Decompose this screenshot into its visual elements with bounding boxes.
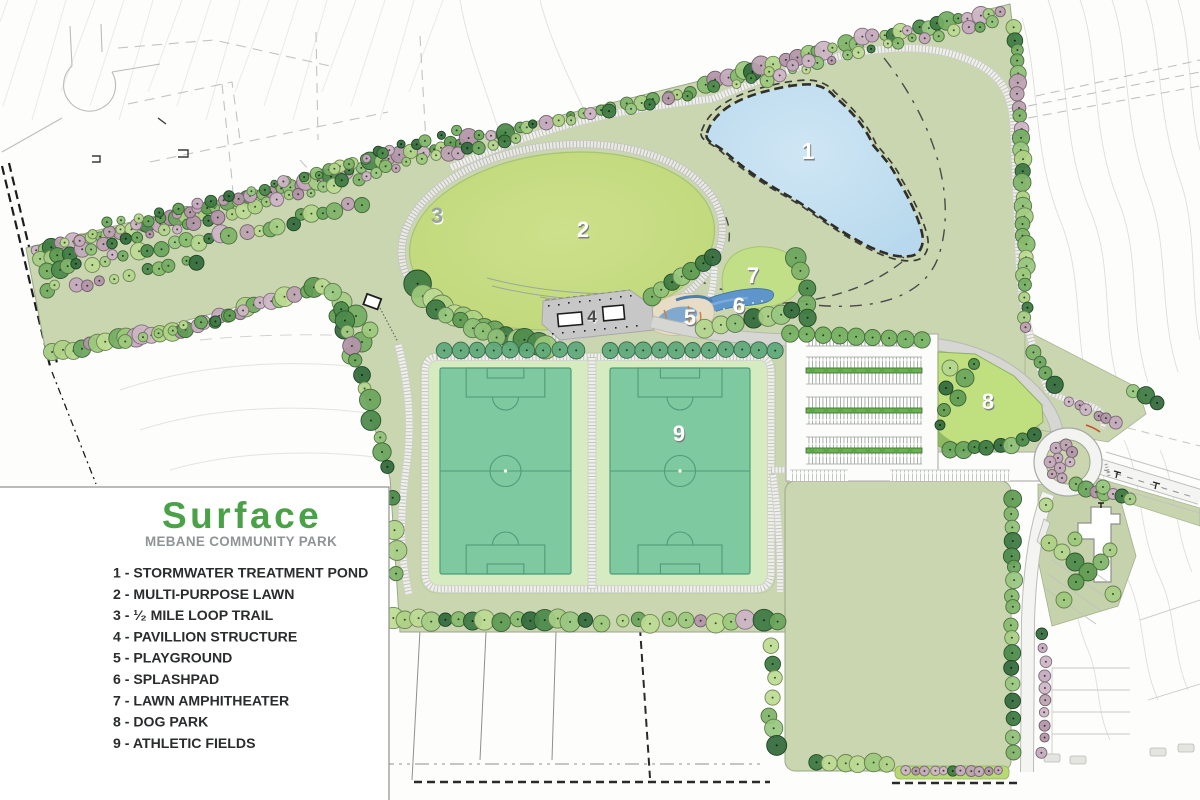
svg-text:7: 7 xyxy=(747,263,759,288)
svg-text:6: 6 xyxy=(733,293,745,318)
svg-text:2: 2 xyxy=(577,217,589,242)
svg-text:Surface: Surface xyxy=(162,495,322,536)
svg-text:2 - MULTI-PURPOSE LAWN: 2 - MULTI-PURPOSE LAWN xyxy=(113,586,294,602)
svg-text:1 - STORMWATER TREATMENT POND: 1 - STORMWATER TREATMENT POND xyxy=(113,565,368,581)
svg-text:5: 5 xyxy=(684,305,696,330)
svg-text:5 - PLAYGROUND: 5 - PLAYGROUND xyxy=(113,650,232,666)
svg-text:3 - ¹⁄₂ MILE LOOP TRAIL: 3 - ¹⁄₂ MILE LOOP TRAIL xyxy=(113,607,274,623)
svg-text:6 - SPLASHPAD: 6 - SPLASHPAD xyxy=(113,671,219,687)
svg-text:4: 4 xyxy=(587,307,597,326)
svg-text:9 - ATHLETIC FIELDS: 9 - ATHLETIC FIELDS xyxy=(113,735,256,751)
svg-text:1: 1 xyxy=(802,138,815,164)
svg-text:8: 8 xyxy=(982,389,994,414)
svg-text:4 - PAVILLION STRUCTURE: 4 - PAVILLION STRUCTURE xyxy=(113,628,297,644)
svg-text:7 - LAWN AMPHITHEATER: 7 - LAWN AMPHITHEATER xyxy=(113,692,289,708)
svg-text:3: 3 xyxy=(431,203,443,228)
svg-text:8 - DOG PARK: 8 - DOG PARK xyxy=(113,714,209,730)
svg-text:MEBANE COMMUNITY PARK: MEBANE COMMUNITY PARK xyxy=(145,534,337,549)
svg-text:9: 9 xyxy=(673,421,685,446)
